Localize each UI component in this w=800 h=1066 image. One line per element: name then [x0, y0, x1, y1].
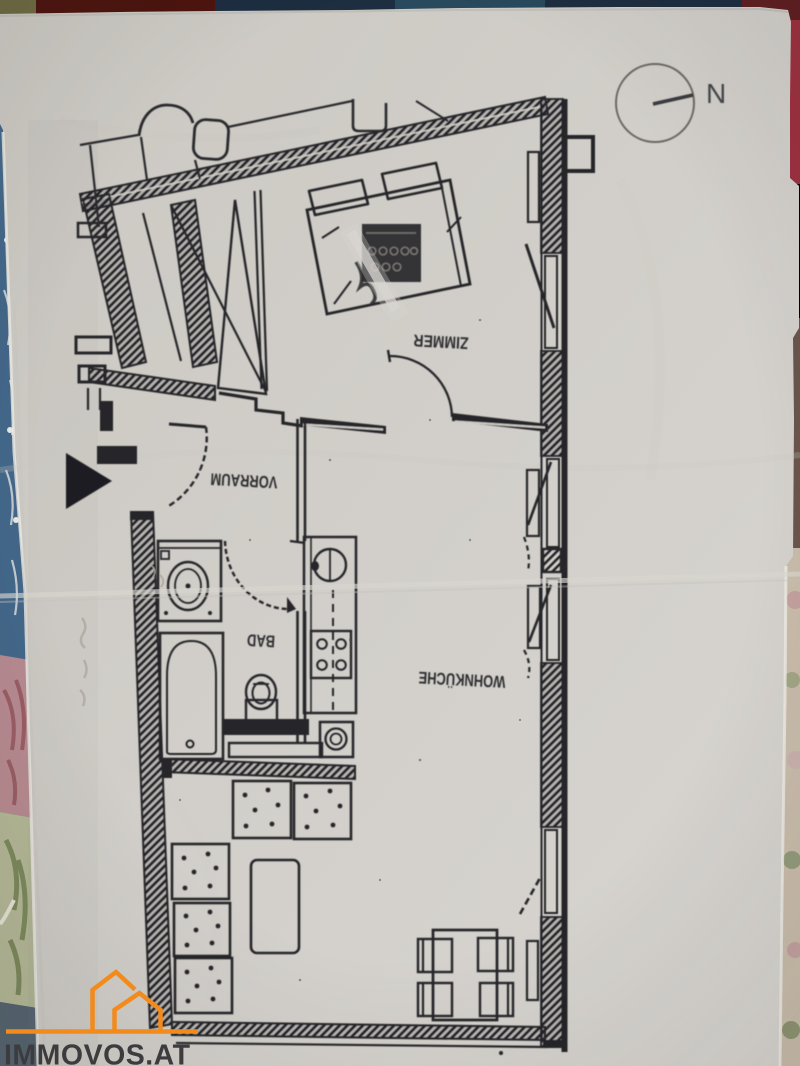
svg-text:IMMOVOS.AT: IMMOVOS.AT — [4, 1040, 191, 1066]
